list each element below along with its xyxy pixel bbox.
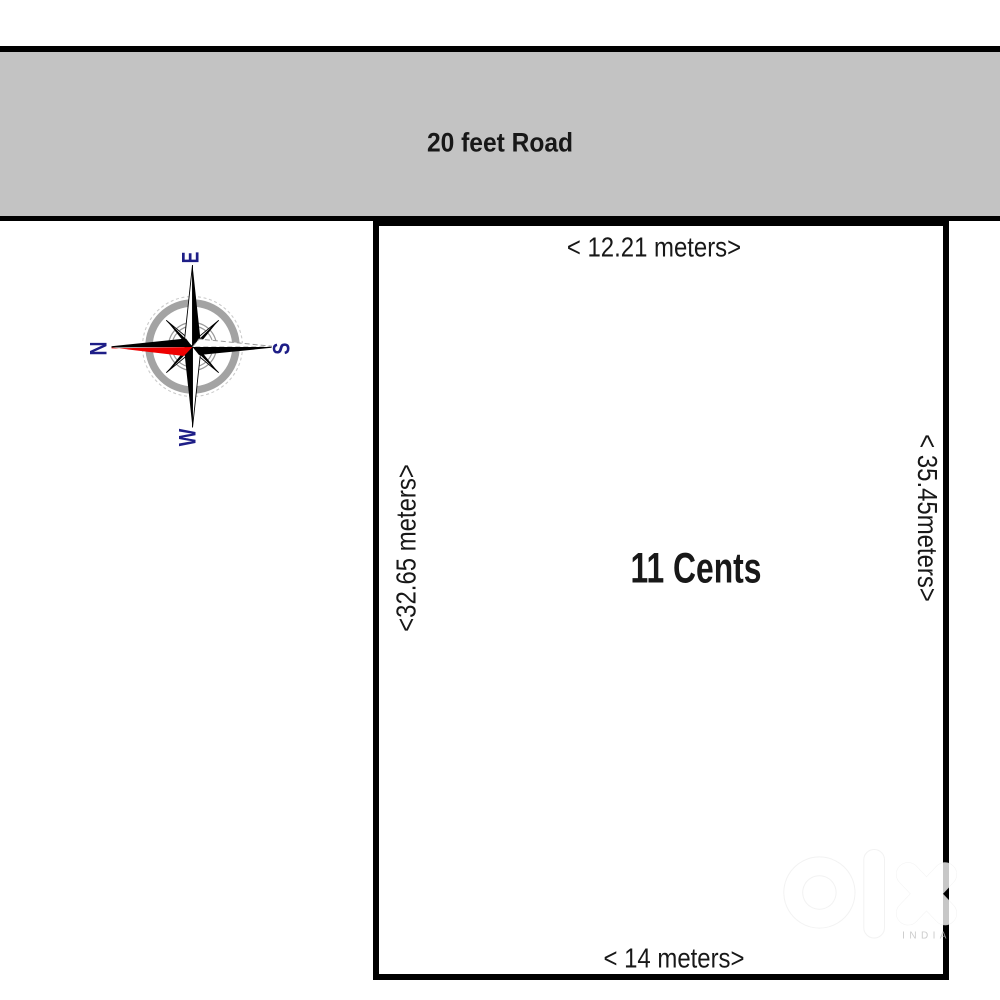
svg-text:INDIA: INDIA	[902, 931, 951, 942]
svg-text:N: N	[86, 342, 113, 356]
svg-text:S: S	[269, 343, 296, 355]
svg-text:W: W	[175, 428, 202, 446]
svg-text:E: E	[178, 252, 205, 264]
